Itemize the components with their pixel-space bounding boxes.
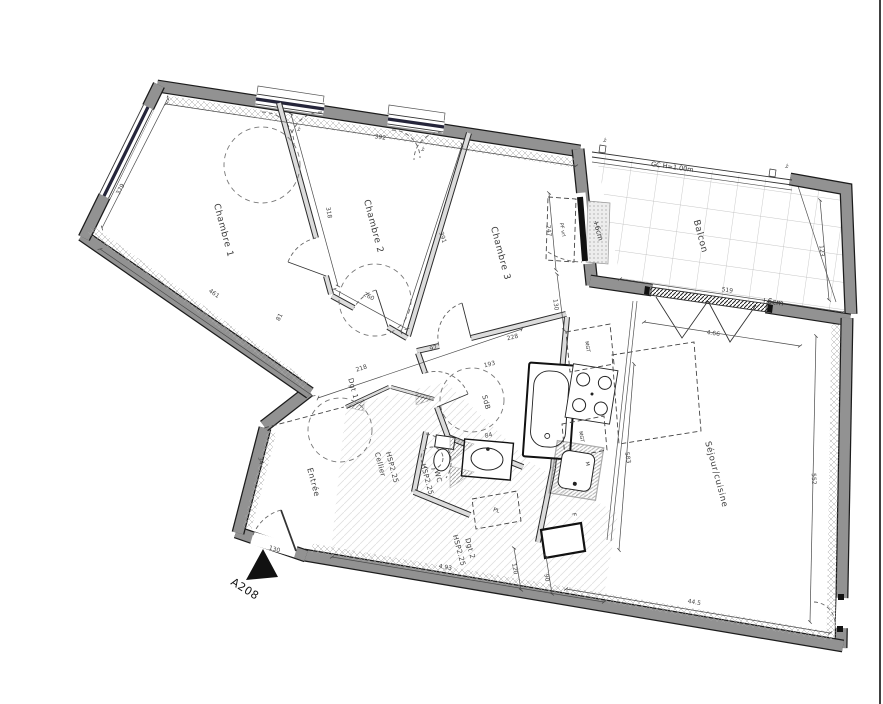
service-door-jamb1 (838, 594, 844, 600)
floor-plan-drawing: Chambre 1 Chambre 2 Chambre 3 Balcon Séj… (0, 0, 883, 704)
dim-living-right: 552 (810, 473, 818, 485)
dim-c3-door: 247 (544, 225, 552, 237)
service-door-opening (842, 598, 843, 628)
guardrail-post-left (599, 145, 606, 153)
dim-entry-side: 34 (256, 456, 264, 465)
fridge-fixture (541, 523, 585, 558)
sheet-background (0, 0, 883, 704)
dim-hall2-b: 90 (542, 573, 550, 582)
kitchen-sink-fixture (549, 441, 604, 501)
bay-jamb-left (644, 286, 650, 295)
guardrail-post-right (769, 169, 776, 177)
hatch-right (831, 324, 836, 640)
dim-balcony-side: 123 (818, 245, 826, 257)
dim-c3-side: 130 (551, 299, 559, 311)
service-door-jamb2 (837, 626, 843, 632)
floor-plan-sheet: Chambre 1 Chambre 2 Chambre 3 Balcon Séj… (0, 0, 883, 704)
cooktop-fixture (565, 364, 618, 424)
